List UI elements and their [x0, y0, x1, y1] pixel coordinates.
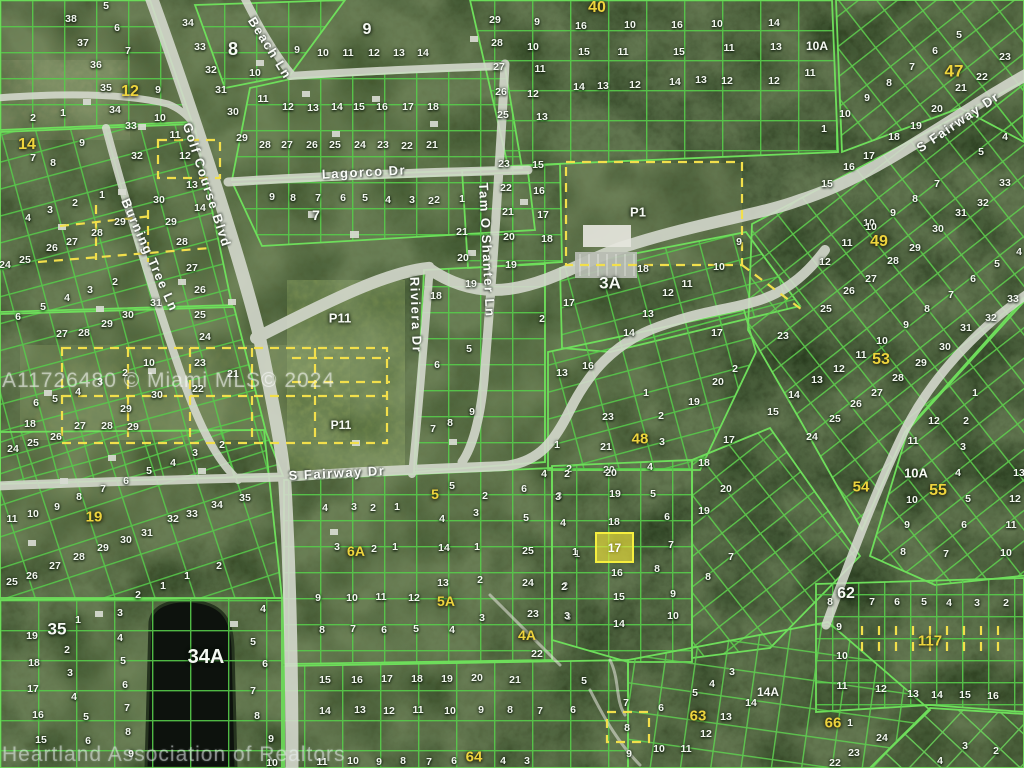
map-overlay	[0, 0, 1024, 768]
parcel-grid	[0, 0, 1024, 768]
church-building	[583, 225, 631, 247]
highlighted-parcel	[596, 533, 633, 562]
aerial-plat-map: 5386377363513423332910111297813343332313…	[0, 0, 1024, 768]
